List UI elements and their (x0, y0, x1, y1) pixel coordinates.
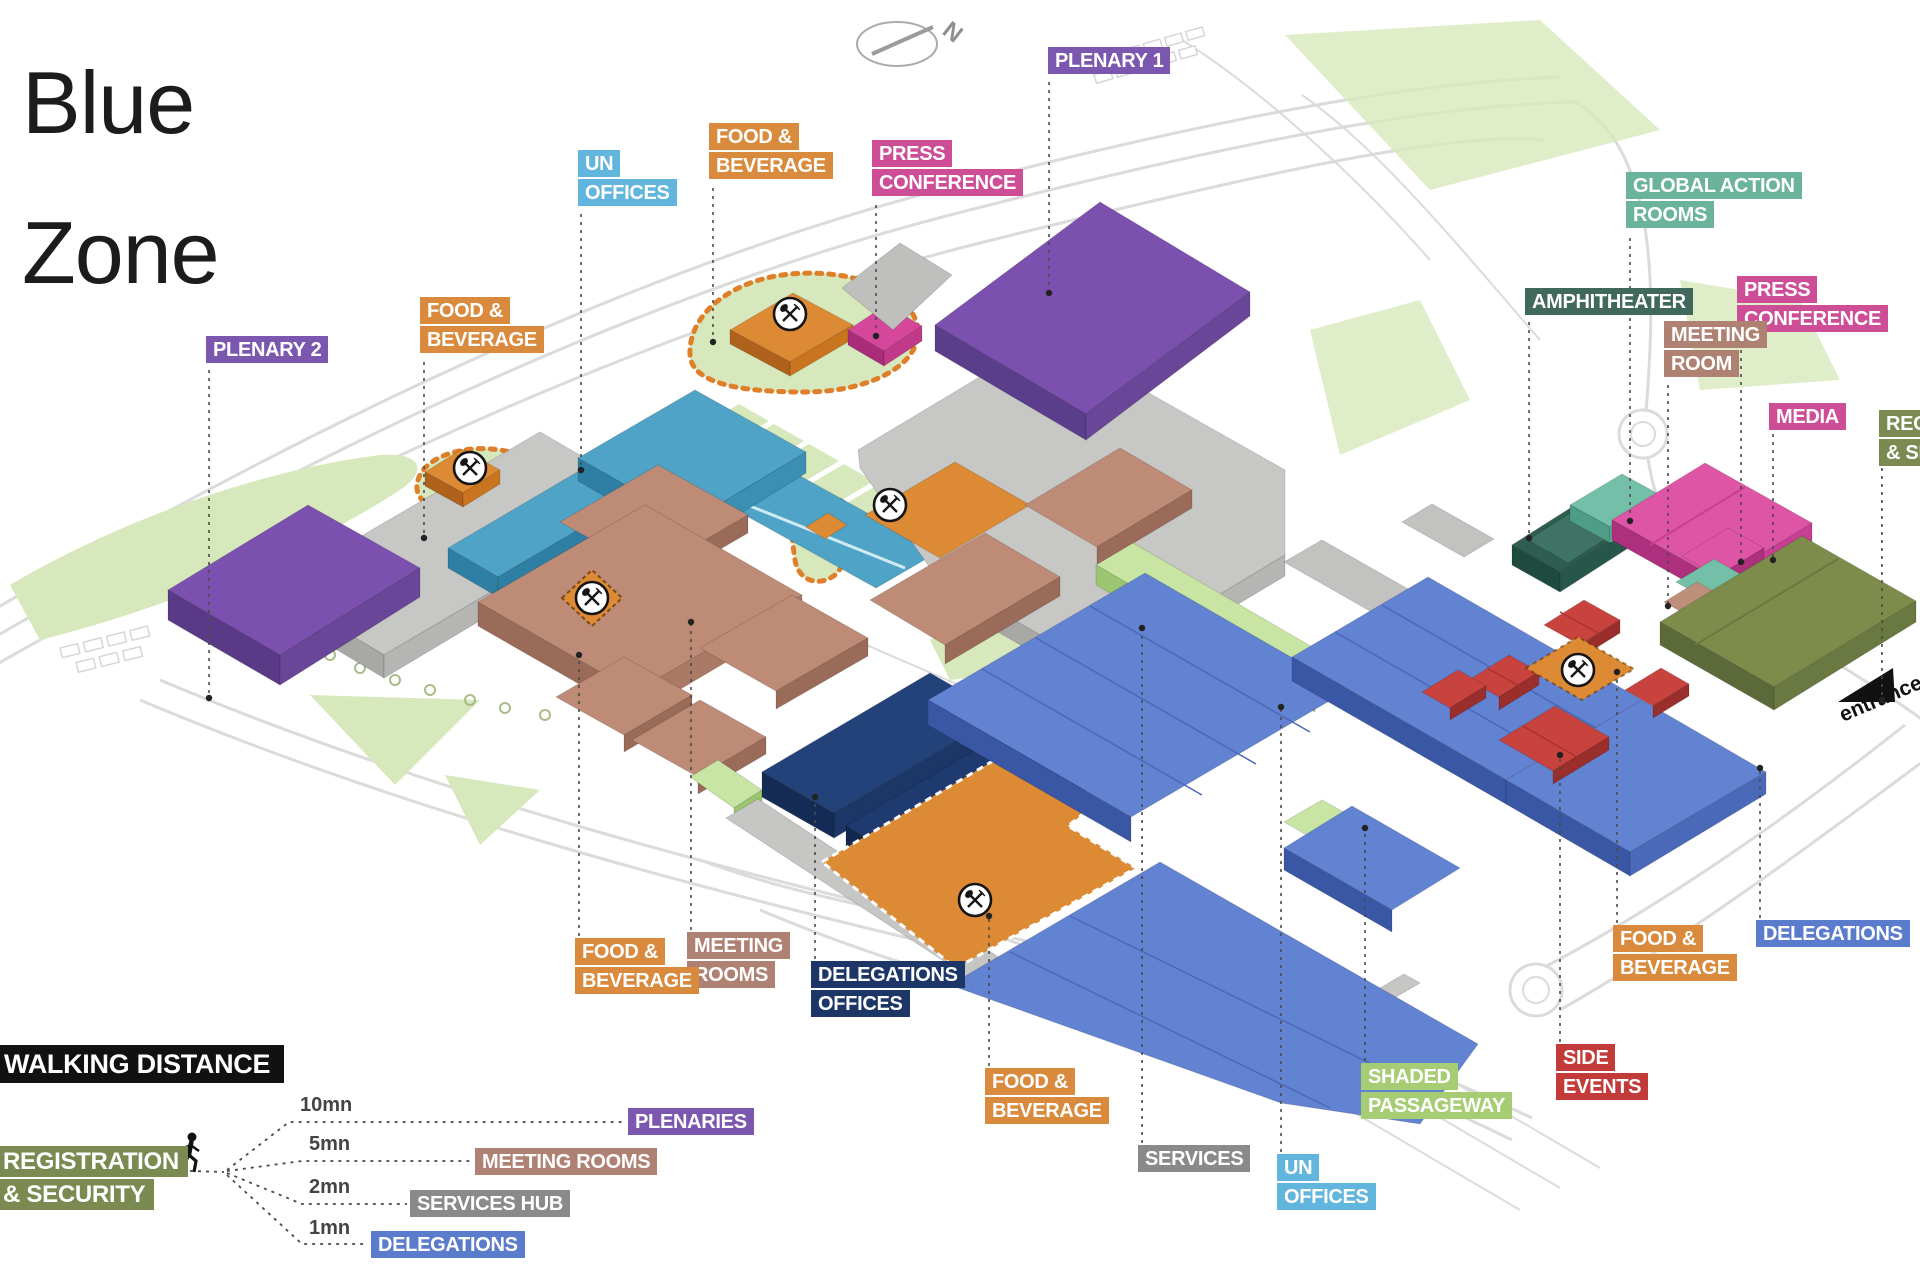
label-press-conference-top-line2: CONFERENCE (872, 169, 1023, 196)
label-press-conference-right-line1: PRESS (1737, 276, 1817, 303)
label-amphitheater-line1: AMPHITHEATER (1525, 288, 1693, 315)
label-global-action-rooms: GLOBAL ACTIONROOMS (1626, 172, 1802, 230)
label-delegations-offices-line1: DELEGATIONS (811, 961, 965, 988)
leader-dot (1665, 603, 1671, 609)
page-title: Blue Zone (22, 28, 322, 327)
leader-dot (1770, 557, 1776, 563)
label-registration-security-right-line1: REGISTRATION (1879, 410, 1920, 437)
label-meeting-rooms-bottom-line2: ROOMS (687, 961, 775, 988)
label-food-beverage-bottom-left: FOOD &BEVERAGE (575, 938, 699, 996)
label-plenary-1: PLENARY 1 (1048, 47, 1170, 76)
leader-dot (986, 913, 992, 919)
legend-chip-label: MEETING ROOMS (475, 1148, 657, 1175)
leader-dot (873, 333, 879, 339)
label-un-offices-bottom: UNOFFICES (1277, 1154, 1376, 1212)
leader-dot (710, 339, 716, 345)
legend-chip-delegations: DELEGATIONS (371, 1231, 525, 1260)
label-services: SERVICES (1138, 1145, 1250, 1174)
label-un-offices-top-line2: OFFICES (578, 179, 677, 206)
label-plenary-2-line1: PLENARY 2 (206, 336, 328, 363)
label-meeting-rooms-bottom-line1: MEETING (687, 932, 790, 959)
leader-dot (1879, 697, 1885, 703)
blue-zone-map: N entrance Blue Zone WALKING DISTANCE RE… (0, 0, 1920, 1280)
leader-dot (812, 794, 818, 800)
label-plenary-1-line1: PLENARY 1 (1048, 47, 1170, 74)
leader-dot (1139, 625, 1145, 631)
label-un-offices-bottom-line1: UN (1277, 1154, 1319, 1181)
label-food-beverage-bottom-left-line2: BEVERAGE (575, 967, 699, 994)
label-services-line1: SERVICES (1138, 1145, 1250, 1172)
label-global-action-rooms-line2: ROOMS (1626, 201, 1714, 228)
legend-time-2mn: 2mn (309, 1176, 350, 1199)
label-global-action-rooms-line1: GLOBAL ACTION (1626, 172, 1802, 199)
leader-dot (421, 535, 427, 541)
label-food-beverage-right-line1: FOOD & (1613, 925, 1703, 952)
leader-dot (578, 467, 584, 473)
label-plenary-2: PLENARY 2 (206, 336, 328, 365)
label-side-events: SIDEEVENTS (1556, 1044, 1648, 1102)
label-un-offices-bottom-line2: OFFICES (1277, 1183, 1376, 1210)
legend-chip-meeting-rooms: MEETING ROOMS (475, 1148, 657, 1177)
legend-time-10mn: 10mn (300, 1094, 352, 1117)
label-food-beverage-left: FOOD &BEVERAGE (420, 297, 544, 355)
label-registration-security-right: REGISTRATION& SECURITY (1879, 410, 1920, 468)
label-food-beverage-right-line2: BEVERAGE (1613, 954, 1737, 981)
label-shaded-passageway-line1: SHADED (1361, 1063, 1458, 1090)
label-delegations-right: DELEGATIONS (1756, 920, 1910, 949)
leader-dot (1526, 535, 1532, 541)
legend-chip-label: SERVICES HUB (410, 1190, 570, 1217)
label-amphitheater: AMPHITHEATER (1525, 288, 1693, 317)
legend-chip-services-hub: SERVICES HUB (410, 1190, 570, 1219)
leader-dot (206, 695, 212, 701)
label-un-offices-top: UNOFFICES (578, 150, 677, 208)
registration-label-line2: & SECURITY (0, 1179, 154, 1210)
label-meeting-room-right: MEETINGROOM (1664, 321, 1767, 379)
label-food-beverage-left-line2: BEVERAGE (420, 326, 544, 353)
label-food-beverage-bottom-center: FOOD &BEVERAGE (985, 1068, 1109, 1126)
label-un-offices-top-line1: UN (578, 150, 620, 177)
legend-chip-label: DELEGATIONS (371, 1231, 525, 1258)
label-shaded-passageway: SHADEDPASSAGEWAY (1361, 1063, 1512, 1121)
label-food-beverage-right: FOOD &BEVERAGE (1613, 925, 1737, 983)
leader-dot (1278, 704, 1284, 710)
leader-dot (1614, 669, 1620, 675)
walking-distance-label: WALKING DISTANCE (0, 1045, 284, 1083)
label-side-events-line1: SIDE (1556, 1044, 1615, 1071)
label-delegations-offices: DELEGATIONSOFFICES (811, 961, 965, 1019)
label-meeting-room-right-line2: ROOM (1664, 350, 1739, 377)
label-food-beverage-bottom-left-line1: FOOD & (575, 938, 665, 965)
legend-title: WALKING DISTANCE (0, 1045, 284, 1085)
label-media-line1: MEDIA (1769, 403, 1846, 430)
label-delegations-right-line1: DELEGATIONS (1756, 920, 1910, 947)
label-press-conference-top-line1: PRESS (872, 140, 952, 167)
label-food-beverage-top: FOOD &BEVERAGE (709, 123, 833, 181)
label-delegations-offices-line2: OFFICES (811, 990, 910, 1017)
legend-chip-plenaries: PLENARIES (628, 1108, 754, 1137)
legend-time-1mn: 1mn (309, 1217, 350, 1240)
leader-dot (1627, 518, 1633, 524)
label-side-events-line2: EVENTS (1556, 1073, 1648, 1100)
leader-dot (1757, 765, 1763, 771)
label-food-beverage-top-line1: FOOD & (709, 123, 799, 150)
label-meeting-room-right-line1: MEETING (1664, 321, 1767, 348)
label-food-beverage-bottom-center-line2: BEVERAGE (985, 1097, 1109, 1124)
registration-label-line1: REGISTRATION (0, 1146, 188, 1177)
label-food-beverage-top-line2: BEVERAGE (709, 152, 833, 179)
legend-connector (227, 1161, 472, 1171)
label-shaded-passageway-line2: PASSAGEWAY (1361, 1092, 1512, 1119)
label-press-conference-top: PRESSCONFERENCE (872, 140, 1023, 198)
leader-dot (688, 619, 694, 625)
legend-chip-label: PLENARIES (628, 1108, 754, 1135)
label-registration-security-right-line2: & SECURITY (1879, 439, 1920, 466)
leader-dot (1738, 559, 1744, 565)
label-food-beverage-bottom-center-line1: FOOD & (985, 1068, 1075, 1095)
label-meeting-rooms-bottom: MEETINGROOMS (687, 932, 790, 990)
leader-dot (576, 652, 582, 658)
label-food-beverage-left-line1: FOOD & (420, 297, 510, 324)
leader-dot (1046, 290, 1052, 296)
label-media: MEDIA (1769, 403, 1846, 432)
leader-dot (1557, 752, 1563, 758)
legend-origin-label: REGISTRATION & SECURITY (0, 1146, 188, 1212)
leader-dot (1362, 825, 1368, 831)
legend-time-5mn: 5mn (309, 1133, 350, 1156)
